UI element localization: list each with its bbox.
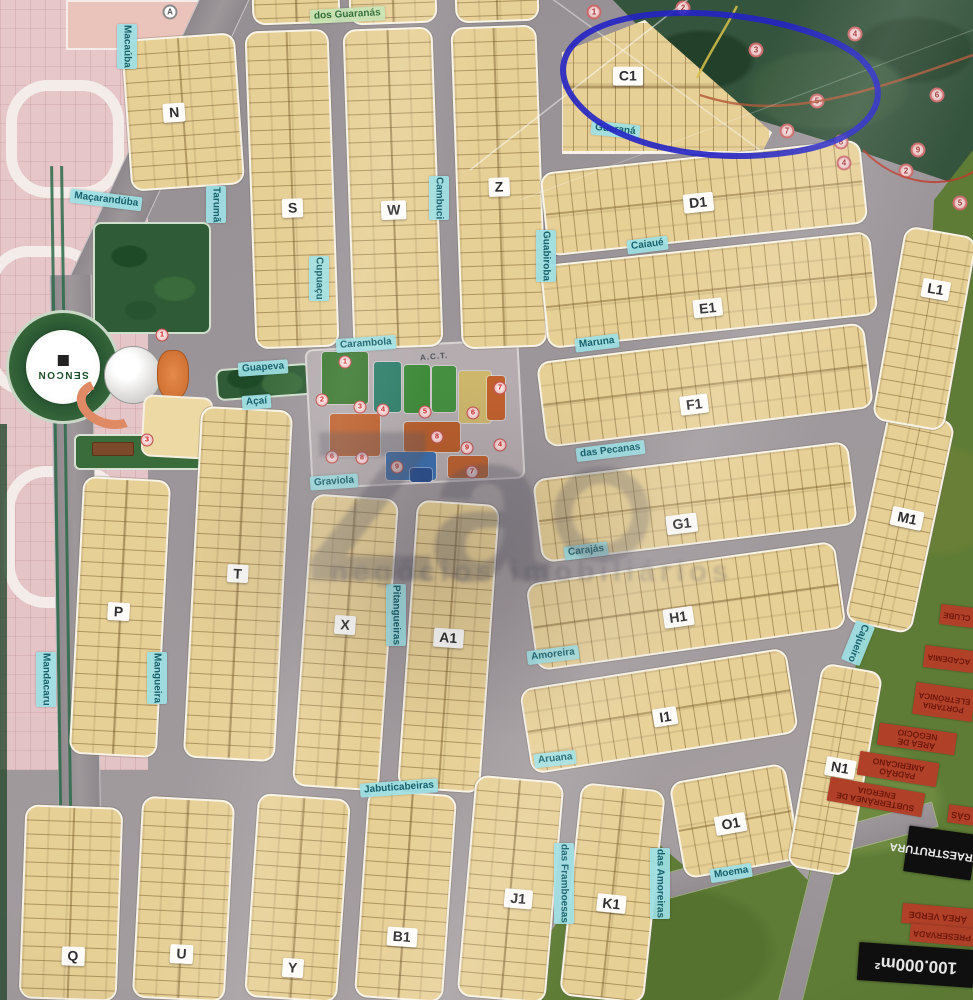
amenity-badge: 1 (339, 356, 352, 369)
legend-item: CLUBE (939, 604, 973, 628)
logo-name: SENCON (37, 369, 89, 380)
lot-block-O1: O1 (668, 762, 801, 879)
poi-marker: 2 (676, 1, 691, 16)
pink-culdesac-road (6, 80, 124, 198)
block-label-E1: E1 (692, 297, 723, 319)
park-building (92, 442, 134, 456)
block-label-Z: Z (488, 177, 509, 197)
block-label-C1: C1 (613, 67, 643, 86)
block-label-O1: O1 (714, 812, 747, 836)
lot-block-Q: Q (19, 804, 124, 1000)
poi-marker: 9 (911, 143, 926, 158)
park-area (93, 222, 211, 334)
lot-block-P: P (69, 476, 171, 758)
poi-marker: 5 (953, 196, 968, 211)
street-label-mandacaru: Mandacaru (36, 652, 56, 707)
block-label-J1: J1 (504, 888, 533, 909)
lot-block-B1: B1 (354, 789, 457, 1000)
legend-item: 100.000m² (857, 942, 973, 988)
qr-code-icon (58, 355, 69, 366)
block-label-D1: D1 (682, 192, 714, 214)
block-label-B1: B1 (386, 926, 417, 947)
developer-logo-text: SENCON (37, 355, 89, 380)
block-label-N1: N1 (824, 756, 857, 780)
street-label-das-framboesas: das Framboesas (554, 843, 574, 924)
street-label-tarumã: Tarumã (206, 186, 226, 223)
lot-block-Y: Y (244, 793, 351, 1000)
block-label-M1: M1 (890, 506, 925, 531)
masterplan-map-photo: SENCON A.C.T. NSWZC1D1E1F1G1H1I1PTXA1QUY… (0, 0, 973, 1000)
poi-marker: 8 (834, 135, 849, 150)
street-label-açaí: Açaí (242, 394, 272, 409)
poi-marker: 4 (837, 156, 852, 171)
phase-marker: A (163, 5, 178, 20)
block-label-P: P (107, 601, 129, 621)
lot-block-edge (454, 0, 539, 23)
street-label-guabiroba: Guabiroba (536, 230, 556, 282)
poi-marker: 4 (848, 27, 863, 42)
poi-marker: 6 (930, 88, 945, 103)
block-label-Q: Q (61, 946, 85, 966)
block-label-H1: H1 (662, 606, 694, 629)
block-label-L1: L1 (920, 278, 951, 301)
amenity-badge: 3 (141, 434, 154, 447)
block-label-U: U (170, 944, 193, 964)
poi-marker: 5 (810, 94, 825, 109)
street-label-mangueira: Mangueira (147, 652, 167, 704)
street-label-macaúba: Macaúba (117, 24, 137, 69)
legend-item: GÁS (947, 804, 973, 825)
poi-marker: 2 (899, 164, 914, 179)
lot-block-T: T (183, 406, 293, 762)
watermark-tagline: negócios imobiliários (330, 556, 733, 589)
poi-marker: 1 (587, 5, 602, 20)
legend-item: INFRAESTRUTURA (903, 825, 973, 880)
lot-block-S: S (244, 29, 339, 350)
water-tower (157, 350, 189, 400)
block-label-G1: G1 (665, 513, 698, 535)
poi-marker: 3 (749, 43, 764, 58)
lot-block-Z: Z (450, 25, 547, 350)
tree-line (0, 424, 7, 1000)
block-label-S: S (282, 198, 304, 218)
block-label-N: N (163, 102, 186, 122)
block-label-A1: A1 (433, 627, 464, 648)
block-label-Y: Y (281, 958, 304, 978)
poi-marker: 7 (780, 124, 795, 139)
block-label-K1: K1 (596, 893, 628, 915)
block-label-I1: I1 (652, 705, 678, 727)
block-label-T: T (227, 564, 249, 584)
block-label-W: W (381, 200, 407, 220)
block-label-F1: F1 (679, 393, 709, 415)
lot-block-J1: J1 (456, 775, 564, 1000)
watermark-text: Za (305, 385, 540, 626)
lot-block-N: N (121, 32, 245, 192)
street-label-das-amoreiras: das Amoreiras (650, 848, 670, 919)
lot-block-U: U (132, 796, 235, 1000)
amenity-badge: 1 (156, 329, 169, 342)
street-label-cupuaçu: Cupuaçu (309, 256, 329, 301)
watermark-ring (554, 466, 650, 562)
street-label-cambuci: Cambuci (429, 176, 449, 220)
